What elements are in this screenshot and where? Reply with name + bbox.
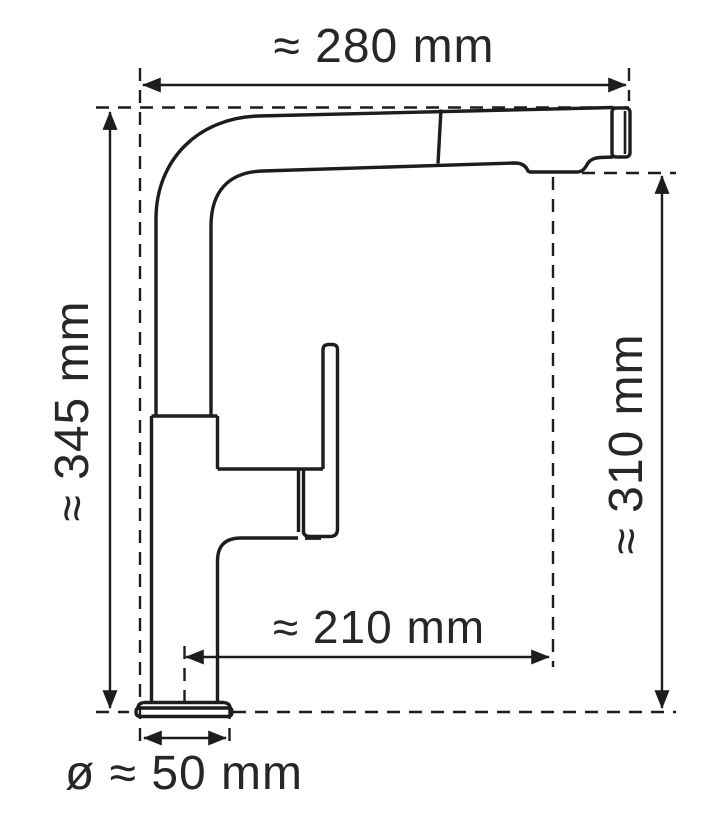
- dimension-label-spout-reach: ≈ 210 mm: [273, 604, 485, 650]
- dimension-label-total-width: ≈ 280 mm: [273, 23, 494, 71]
- faucet-spray-head-cap: [612, 108, 630, 157]
- faucet-handle-lever: [304, 345, 338, 537]
- dimension-label-outlet-height: ≈ 310 mm: [603, 333, 651, 554]
- dimension-label-total-height: ≈ 345 mm: [49, 300, 97, 521]
- dimension-label-base-diameter: ø ≈ 50 mm: [65, 750, 303, 798]
- faucet-spout-outer-edge: [156, 108, 613, 417]
- technical-drawing-canvas: ≈ 280 mm ≈ 345 mm ≈ 310 mm ≈ 210 mm ø ≈ …: [0, 0, 727, 827]
- faucet-spray-head-seam: [438, 110, 441, 164]
